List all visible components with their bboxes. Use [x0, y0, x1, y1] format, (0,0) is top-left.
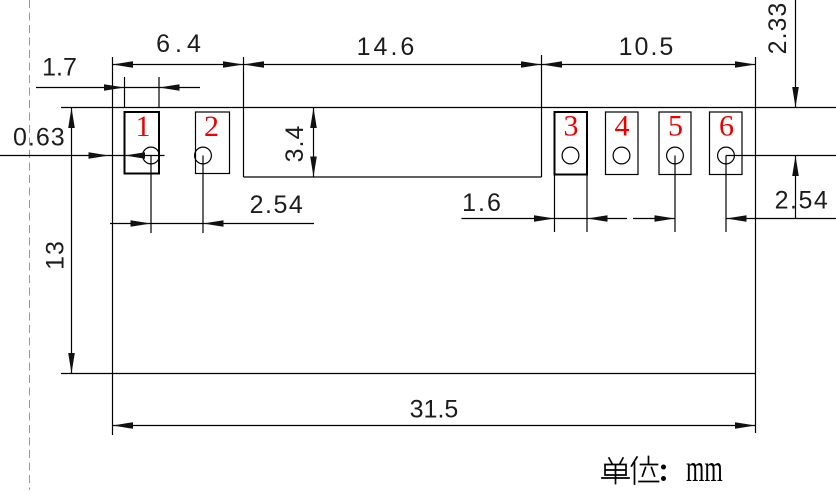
- svg-text:2: 2: [204, 110, 219, 143]
- svg-text:2.33: 2.33: [764, 2, 792, 55]
- svg-text:5: 5: [668, 110, 683, 143]
- svg-text:31.5: 31.5: [410, 396, 459, 424]
- svg-text:6.4: 6.4: [156, 30, 206, 58]
- svg-text:6: 6: [719, 110, 734, 143]
- svg-text:14.6: 14.6: [357, 33, 418, 61]
- svg-text:1.7: 1.7: [42, 54, 77, 82]
- svg-text:3: 3: [564, 110, 579, 143]
- svg-text:2.54: 2.54: [250, 191, 305, 219]
- svg-text:2.54: 2.54: [775, 187, 830, 215]
- svg-text:mm: mm: [686, 447, 723, 489]
- svg-text:4: 4: [615, 110, 630, 143]
- svg-text:10.5: 10.5: [619, 33, 676, 61]
- svg-text:0.63: 0.63: [13, 124, 66, 152]
- svg-text:3.4: 3.4: [281, 125, 309, 163]
- svg-text:1: 1: [136, 110, 151, 143]
- svg-text:13: 13: [42, 240, 70, 270]
- svg-text:1.6: 1.6: [462, 189, 503, 217]
